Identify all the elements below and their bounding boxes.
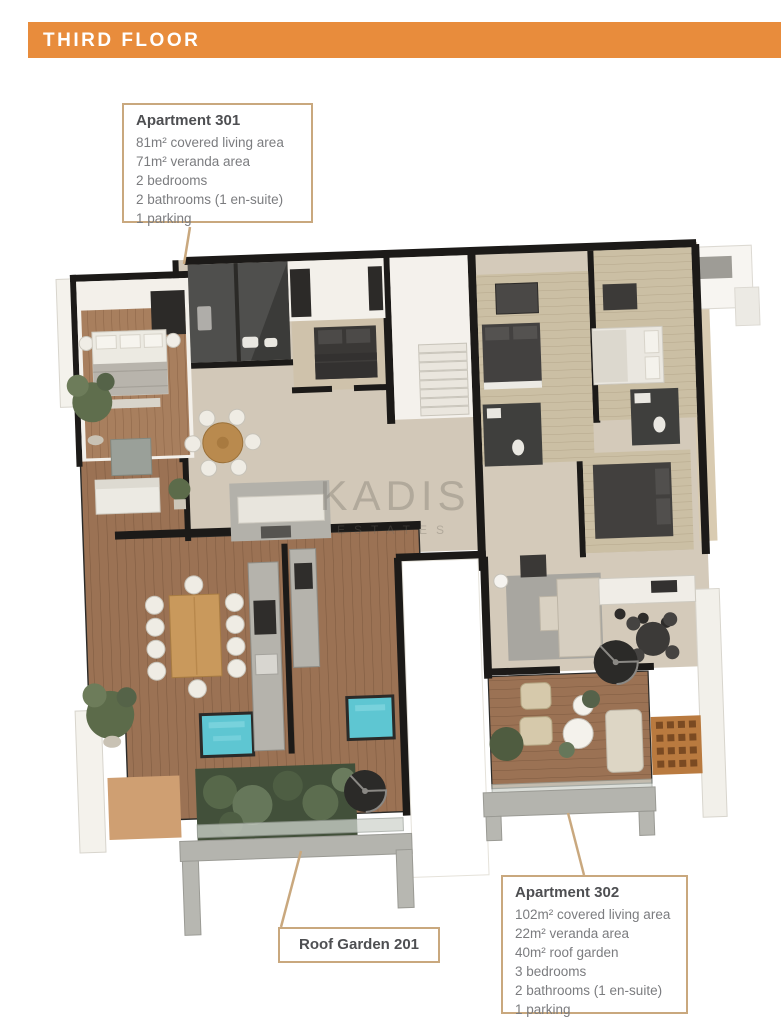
bed-dark [314,325,378,379]
page-title: THIRD FLOOR [28,22,781,58]
apartment-301-line: 71m² veranda area [136,152,301,171]
apartment-302-line: 1 parking [515,1000,676,1019]
bed-white [592,326,664,384]
apartment-302-line: 3 bedrooms [515,962,676,981]
central-void [402,559,489,877]
apartment-301-line: 81m² covered living area [136,133,301,152]
plunge-pool-2 [347,696,394,740]
bathroom-302-ensuite [630,388,680,446]
plunge-pool-1 [200,713,253,757]
pergola-brick-screen [651,715,703,775]
stairwell [389,255,473,420]
living-301 [229,480,331,541]
apartment-301-line: 2 bedrooms [136,171,301,190]
bathroom-302-second [483,403,543,467]
bed-dark [482,323,542,390]
apartment-302-line: 40m² roof garden [515,943,676,962]
page: KADIS ESTATES THIRD FLOOR Apartment 301 … [0,0,781,1024]
bed-dark [593,462,674,539]
apartment-302-line: 102m² covered living area [515,905,676,924]
bathrooms-301 [188,261,291,362]
floor-plan [0,0,781,1024]
apartment-302-line: 22m² veranda area [515,924,676,943]
bedroom-302-third [582,449,693,553]
callout-apartment-302: Apartment 302 102m² covered living area … [501,875,688,1014]
bedroom-301-master [76,278,194,462]
apartment-302-title: Apartment 302 [515,884,676,901]
apartment-301-line: 1 parking [136,209,301,228]
apartment-301-line: 2 bathrooms (1 en-suite) [136,190,301,209]
callout-apartment-301: Apartment 301 81m² covered living area 7… [122,103,313,223]
label-roof-garden-201: Roof Garden 201 [278,927,440,963]
apartment-301-title: Apartment 301 [136,112,301,129]
apartment-302-line: 2 bathrooms (1 en-suite) [515,981,676,1000]
